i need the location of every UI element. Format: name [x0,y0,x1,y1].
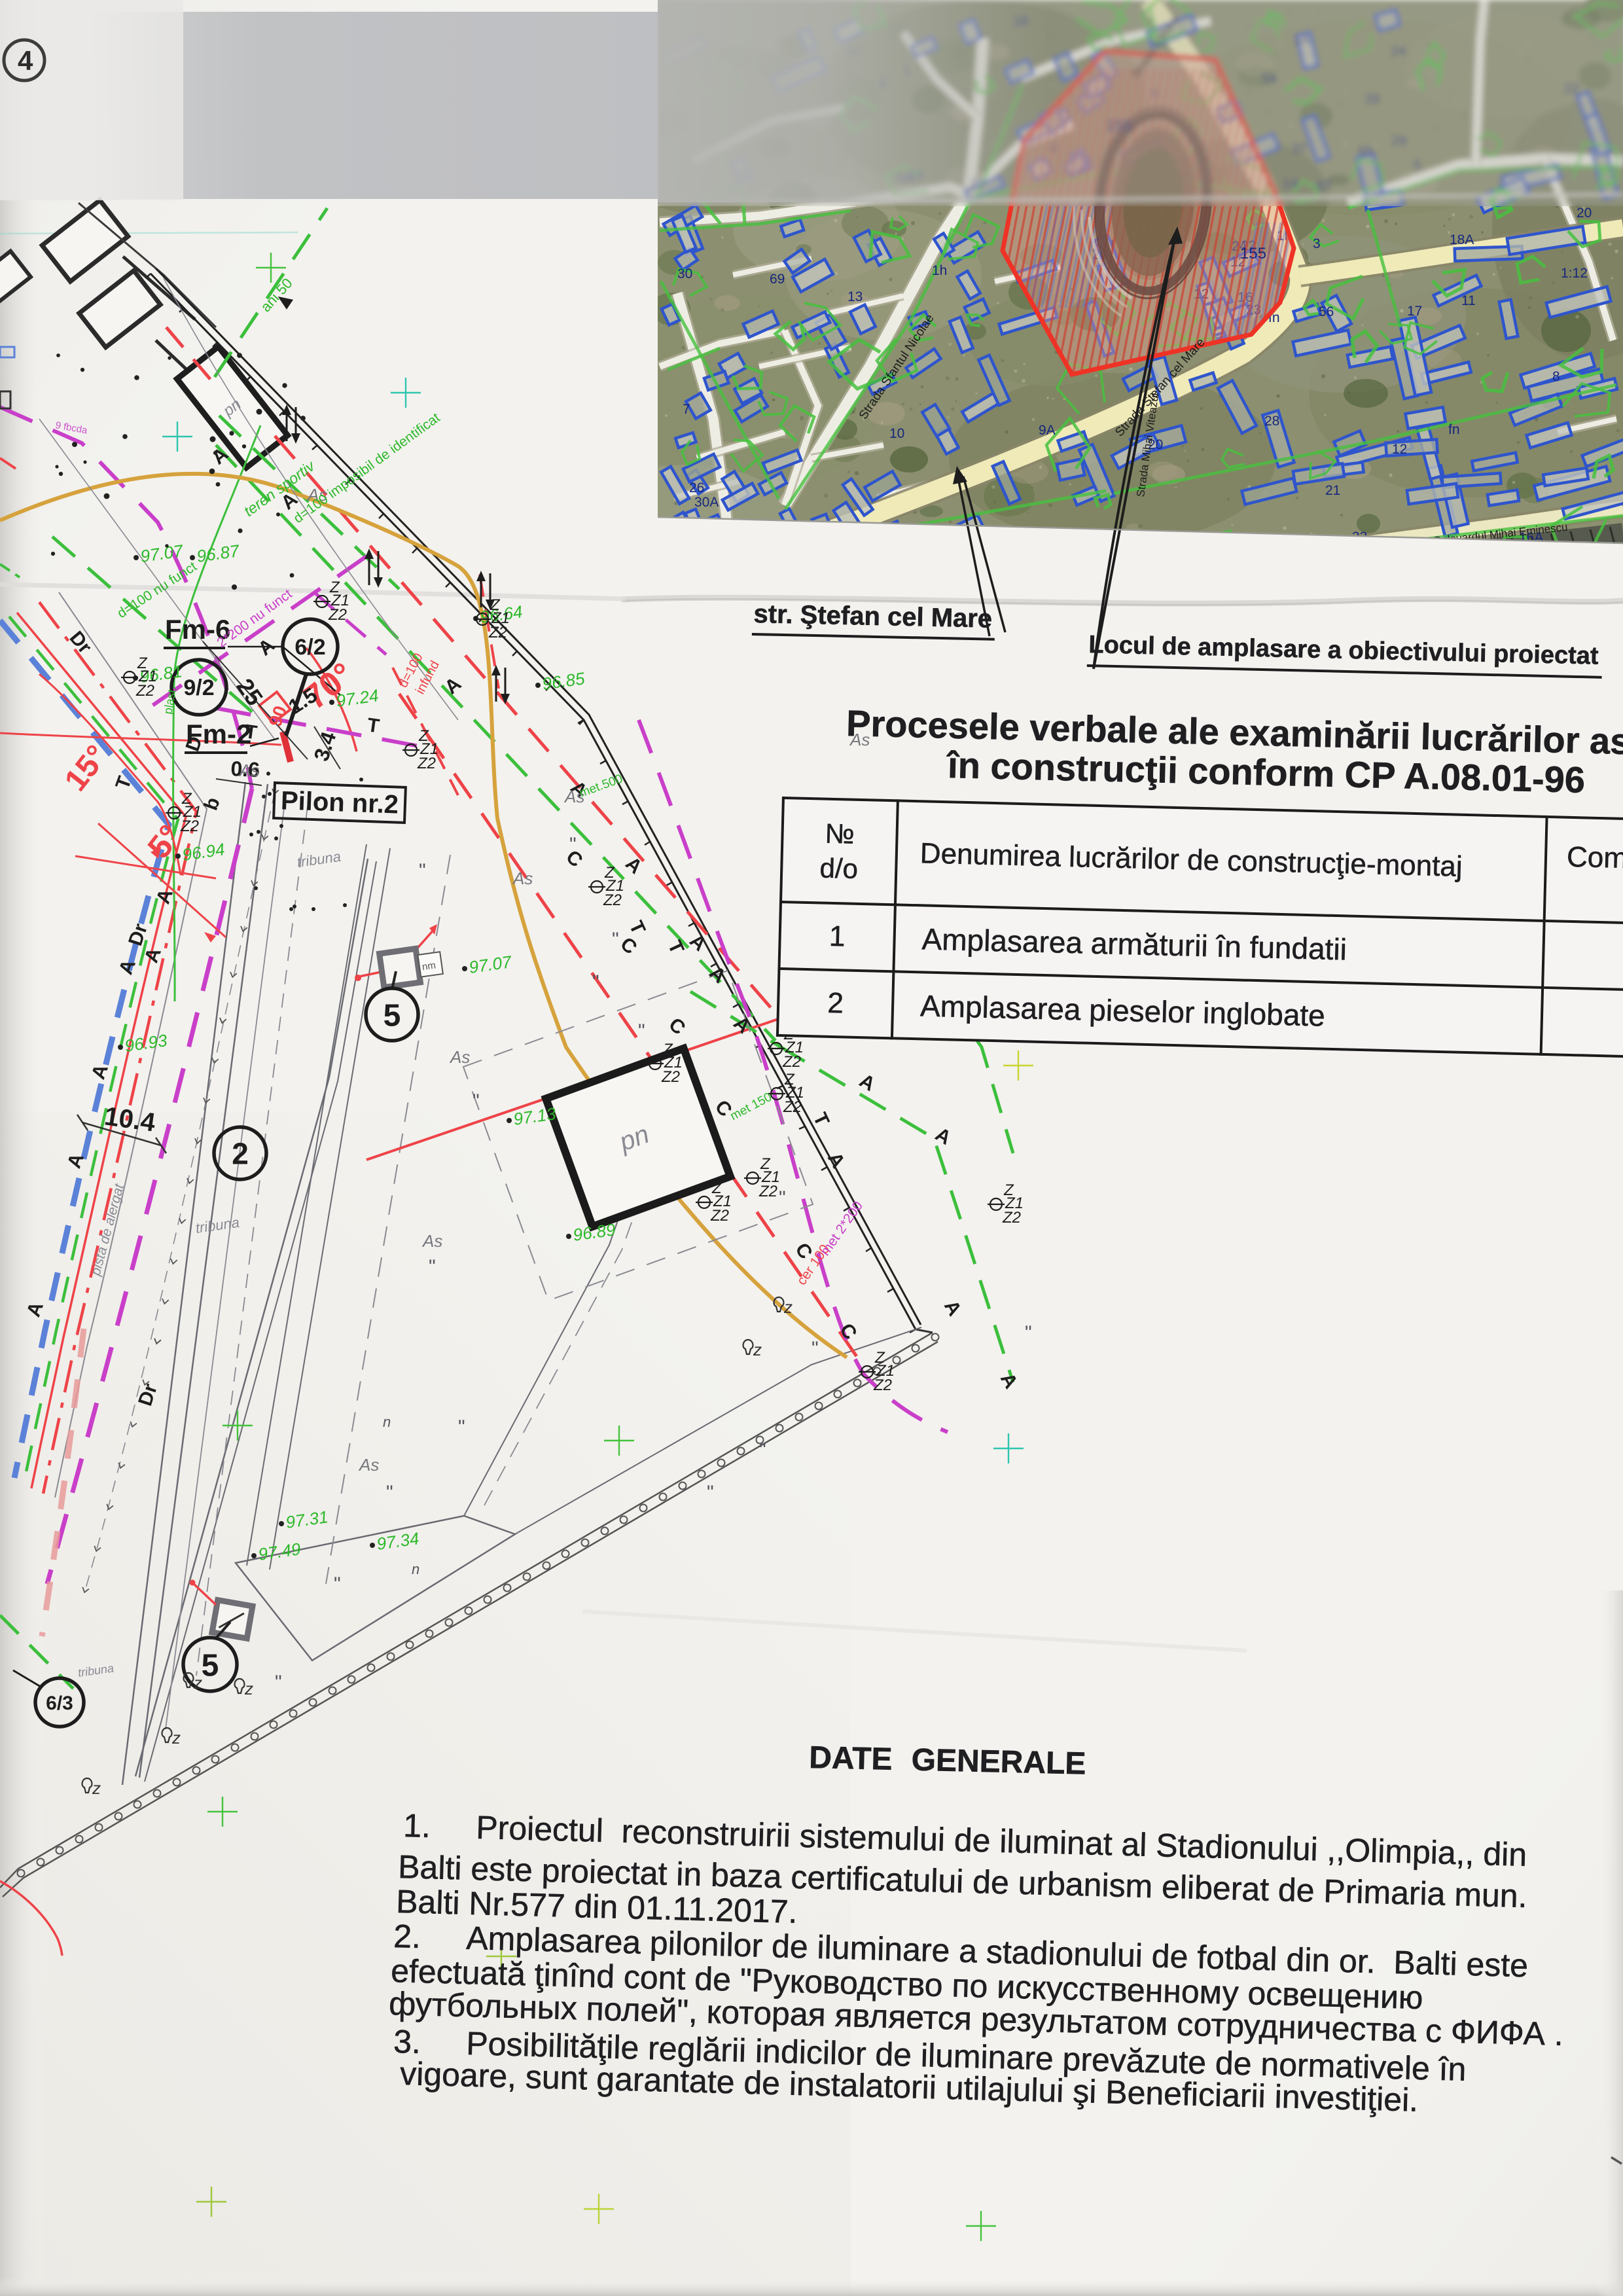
svg-text:n: n [412,1561,419,1577]
svg-text:Z2: Z2 [1002,1209,1021,1227]
svg-text:z: z [171,1728,181,1748]
svg-text:z: z [92,1778,101,1798]
svg-text:4: 4 [18,45,33,76]
svg-text:Z2: Z2 [603,891,622,909]
svg-text:": " [458,1416,465,1438]
svg-text:": " [638,1020,645,1042]
svg-text:": " [707,1482,714,1503]
svg-text:9/2: 9/2 [183,675,214,700]
svg-text:6/3: 6/3 [46,1693,73,1714]
svg-text:": " [275,1672,282,1693]
svg-text:": " [811,1338,819,1359]
svg-text:As: As [449,1047,470,1067]
svg-text:": " [779,1187,786,1209]
svg-text:Z2: Z2 [710,1207,729,1225]
svg-text:Z2: Z2 [180,817,199,835]
svg-text:As: As [512,869,533,888]
svg-text:z: z [244,1679,253,1698]
svg-text:Z2: Z2 [758,1183,777,1200]
svg-text:": " [419,860,426,882]
svg-text:nm: nm [421,960,437,973]
svg-text:": " [334,1573,341,1595]
svg-text:z: z [783,1297,793,1317]
svg-text:": " [473,1090,480,1112]
svg-text:z: z [753,1340,762,1359]
svg-text:": " [429,1256,436,1278]
svg-text:": " [569,834,577,855]
svg-text:": " [1025,1322,1032,1344]
svg-text:Z2: Z2 [488,624,507,641]
svg-text:": " [386,1482,393,1503]
svg-text:As: As [238,761,259,780]
svg-text:Pilon nr.2: Pilon nr.2 [280,786,399,819]
svg-text:Z2: Z2 [782,1053,801,1071]
svg-text:As: As [358,1455,379,1475]
svg-text:2: 2 [232,1137,249,1171]
svg-text:Z2: Z2 [661,1068,680,1086]
svg-text:Z2: Z2 [783,1098,802,1116]
svg-text:": " [592,971,599,993]
svg-text:n: n [383,1414,391,1430]
svg-text:5: 5 [383,998,401,1033]
svg-text:": " [759,1439,766,1461]
svg-text:Z2: Z2 [417,755,436,772]
svg-text:5: 5 [202,1648,219,1683]
svg-text:": " [612,929,619,950]
svg-text:As: As [421,1231,442,1251]
svg-text:Z2: Z2 [328,606,347,624]
svg-text:Z2: Z2 [135,682,154,700]
svg-text:Z2: Z2 [873,1376,892,1394]
svg-text:z: z [193,1673,202,1693]
svg-text:6/2: 6/2 [294,635,325,660]
